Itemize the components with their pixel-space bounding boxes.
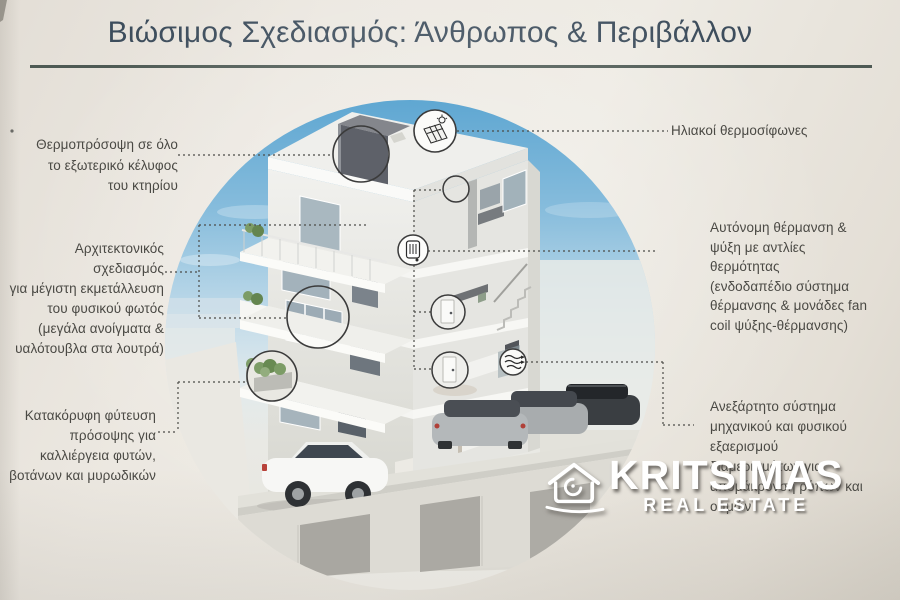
callout-fancoil-upper	[431, 295, 465, 329]
silver-car-1	[432, 400, 528, 449]
circular-rendering	[165, 100, 655, 590]
callout-ventilation	[500, 349, 526, 375]
annotation-architectural-design: Αρχιτεκτονικός σχεδιασμός για μέγιστη εκ…	[2, 239, 164, 359]
stray-dot	[10, 129, 13, 132]
radiator-icon	[407, 241, 420, 262]
annotation-solar-water-heaters: Ηλιακοί θερμοσίφωνες	[671, 121, 883, 142]
callout-planter	[247, 351, 297, 401]
callout-fancoil-lower	[432, 352, 468, 388]
callout-heating-unit	[398, 235, 428, 265]
callout-solar-panel	[414, 110, 456, 152]
annotation-independent-ventilation: Ανεξάρτητο σύστημα μηχανικού και φυσικού…	[710, 397, 892, 517]
annotation-autonomous-hvac: Αυτόνομη θέρμανση & ψύξη με αντλίες θερμ…	[710, 218, 892, 335]
slide: Βιώσιμος Σχεδιασμός: Άνθρωπος & Περιβάλλ…	[0, 0, 900, 600]
photo-corner-mark	[0, 0, 7, 22]
annotation-thermal-insulation: Θερμοπρόσοψη σε όλο το εξωτερικό κέλυφος…	[18, 135, 178, 197]
annotation-vertical-planting: Κατακόρυφη φύτευση πρόσοψης για καλλιέργ…	[6, 406, 156, 486]
